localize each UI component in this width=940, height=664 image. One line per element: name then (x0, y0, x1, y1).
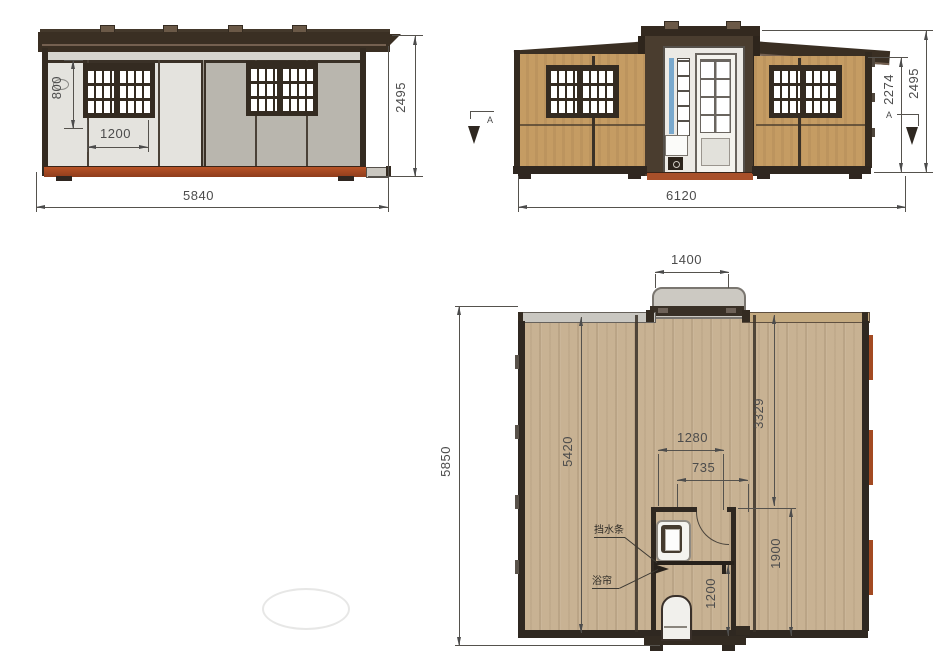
dim-arrow (924, 31, 928, 40)
door-glass-grid (700, 59, 731, 133)
dim-label-door-opening: 735 (692, 461, 715, 475)
dim-arrow (772, 315, 776, 324)
dim-arrow (899, 163, 903, 172)
door-sidelight-panes (677, 58, 690, 136)
window-mullion (577, 70, 582, 113)
dim-line-total-length (459, 306, 460, 646)
dim-line-door-opening (677, 480, 748, 481)
floor-plan-view: 挡水条 浴帘 1400 5850 5420 3329 1280 (0, 230, 940, 664)
section-arrow-down (468, 126, 480, 144)
socket-circle (673, 161, 680, 168)
dim-label-entry-width: 1400 (671, 253, 702, 267)
dim-line-side-height (926, 31, 927, 172)
door-sidelight-glass (669, 58, 674, 134)
edge-hinge (872, 93, 875, 102)
dim-arrow (924, 163, 928, 172)
dim-line-entry-width (655, 272, 729, 273)
dim-arrow (726, 627, 730, 636)
threshold-rust (647, 172, 753, 180)
dim-line-right-depth (774, 315, 775, 506)
dim-ext (518, 176, 519, 212)
plan-right-wall (862, 321, 869, 631)
dim-ext (728, 274, 729, 288)
wall-rust-strip (869, 430, 873, 485)
left-wing-hseam (519, 124, 645, 126)
base-foot (757, 174, 770, 179)
section-line (897, 114, 918, 115)
dim-ext (723, 454, 724, 510)
floor (520, 313, 868, 638)
wall-rust-strip (869, 540, 873, 595)
dim-arrow (658, 448, 667, 452)
dim-arrow (772, 497, 776, 506)
side-elevation-view: A 6120 2274 2495 A (0, 0, 940, 230)
dim-ext (655, 274, 656, 288)
dim-ext (455, 645, 660, 646)
bathroom-wall-right (731, 507, 736, 632)
left-wing-edge (514, 50, 520, 168)
section-line (918, 114, 919, 126)
watermark (262, 588, 350, 630)
wall-hinge (515, 355, 519, 369)
left-wing-base (513, 166, 647, 174)
dim-label-bathroom-width: 1280 (677, 431, 708, 445)
dim-arrow (739, 478, 748, 482)
dim-arrow (720, 270, 729, 274)
section-line (470, 111, 494, 112)
fold-seam (635, 315, 638, 632)
wall-cap (742, 310, 750, 322)
side-window-right (769, 65, 842, 118)
arched-opening (661, 595, 692, 641)
dim-arrow (899, 58, 903, 67)
wall-hinge (515, 425, 519, 439)
dim-line-bathroom-length (791, 508, 792, 636)
base-foot (628, 174, 641, 179)
section-arrow-down (906, 127, 918, 145)
window-mullion (800, 70, 805, 113)
dim-arrow (457, 306, 461, 315)
dim-ext (762, 30, 933, 31)
dim-arrow (518, 205, 527, 209)
annotation-underline (592, 588, 619, 589)
base-foot (518, 174, 531, 179)
dim-line-shower-depth (728, 565, 729, 636)
annotation-underline (594, 537, 625, 538)
right-wing-edge (865, 52, 872, 168)
dim-arrow (715, 448, 724, 452)
threshold-mark (658, 308, 668, 313)
dim-label-wall-height: 2274 (882, 74, 896, 105)
fold-seam (753, 315, 756, 632)
bottom-center-wall (644, 636, 746, 645)
wall-hinge (515, 560, 519, 574)
threshold-mark (726, 308, 736, 313)
water-strip-annotation: 挡水条 (594, 525, 624, 536)
dim-arrow (579, 624, 583, 633)
section-marker-label: A (487, 113, 494, 127)
technical-drawing-canvas: 800 1200 2495 5840 (0, 0, 940, 664)
base-foot (722, 645, 735, 651)
dim-line-side-width (518, 207, 906, 208)
corner-post (736, 626, 750, 635)
bathroom-wall-top-left (651, 507, 697, 512)
dim-arrow (677, 478, 686, 482)
dim-arrow (789, 627, 793, 636)
dim-label-right-depth: 3329 (752, 398, 766, 429)
dim-arrow (726, 565, 730, 574)
right-wing-base (752, 166, 871, 174)
plan-left-wall (518, 321, 525, 631)
dim-label-total-length: 5850 (439, 446, 453, 477)
dim-ext (905, 176, 906, 212)
dim-label-side-width: 6120 (666, 189, 697, 203)
base-foot (849, 174, 862, 179)
dim-line-wall-height (901, 58, 902, 172)
electrical-box (665, 135, 688, 156)
right-wing-hseam (756, 124, 866, 126)
edge-hinge (872, 58, 875, 67)
wall-cap (646, 310, 654, 322)
section-line (470, 111, 471, 119)
roof-clip (726, 21, 741, 30)
wall-hinge (515, 495, 519, 509)
dim-ext (874, 172, 933, 173)
door-bottom-panel (701, 138, 730, 166)
shower-unit-core (665, 529, 680, 551)
arch-sill-line (664, 626, 687, 628)
dim-arrow (579, 317, 583, 326)
wall-rust-strip (869, 335, 873, 380)
dim-ext (658, 454, 659, 506)
dim-label-shower-depth: 1200 (704, 578, 718, 609)
power-socket (668, 157, 683, 170)
shower-curtain-annotation: 浴帘 (592, 576, 612, 587)
dim-arrow (789, 508, 793, 517)
dim-line-room-length (581, 317, 582, 633)
side-window-left (546, 65, 619, 118)
dim-ext (455, 306, 518, 307)
section-marker-label: A (886, 108, 893, 122)
top-wall-right (742, 312, 870, 323)
dim-label-bathroom-length: 1900 (769, 538, 783, 569)
dim-ext (677, 484, 678, 507)
dim-label-side-height: 2495 (907, 68, 921, 99)
edge-hinge (872, 128, 875, 137)
dim-label-room-length: 5420 (561, 436, 575, 467)
dim-arrow (655, 270, 664, 274)
dim-ext (738, 508, 796, 509)
roof-clip (664, 21, 679, 30)
